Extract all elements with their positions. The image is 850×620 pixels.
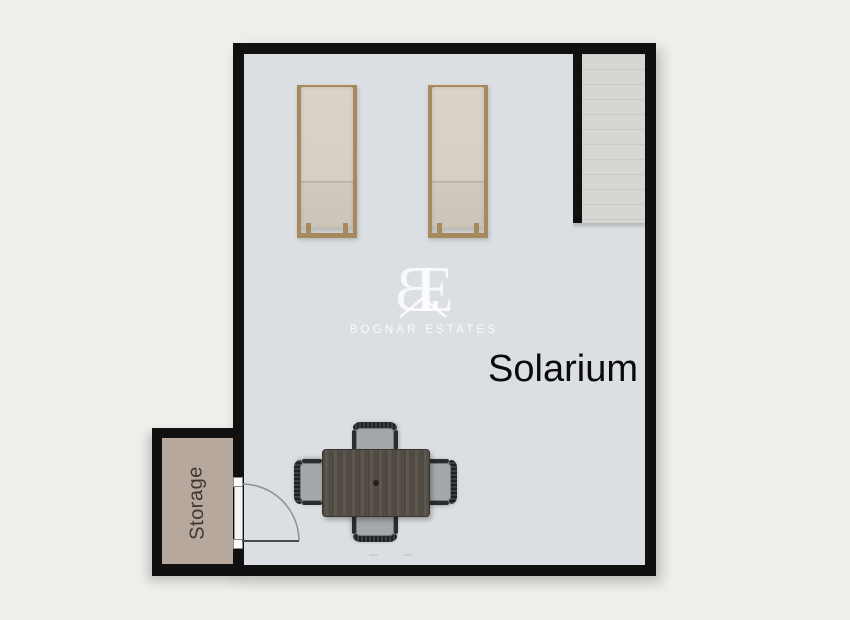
chair-armrest [302,459,322,463]
lounger-cushion [301,87,353,229]
stair-niche-wall [573,43,582,223]
wall-right [645,43,656,576]
sun-lounger [297,85,357,238]
lounger-frame-rail [353,85,357,238]
chair-armrest [302,501,322,505]
room-label-solarium: Solarium [440,350,638,388]
floor-smudge [369,554,378,556]
stair-niche-floor [582,54,645,223]
door-post [233,477,243,487]
lounger-frame-rail [484,85,488,238]
wall-top [233,43,656,54]
door-post [233,539,243,549]
lounger-footbar [428,233,488,238]
lounger-footbar [297,233,357,238]
sun-lounger [428,85,488,238]
floor-plan-canvas: BE BOGNAR ESTATES [0,0,850,620]
floor-smudge [403,554,412,556]
room-label-storage: Storage [184,466,210,540]
door-jamb [234,487,243,539]
lounger-cushion [432,87,484,229]
chair-armrest [352,430,356,450]
storage-wall-bottom [152,564,244,576]
chair-armrest [429,459,449,463]
storage-wall-left [152,428,162,576]
chair-armrest [352,514,356,534]
table-center-knob [373,480,379,486]
wall-bottom [233,565,656,576]
chair-armrest [429,501,449,505]
chair-armrest [394,430,398,450]
storage-wall-top [152,428,244,438]
chair-armrest [394,514,398,534]
dining-table [322,449,430,517]
